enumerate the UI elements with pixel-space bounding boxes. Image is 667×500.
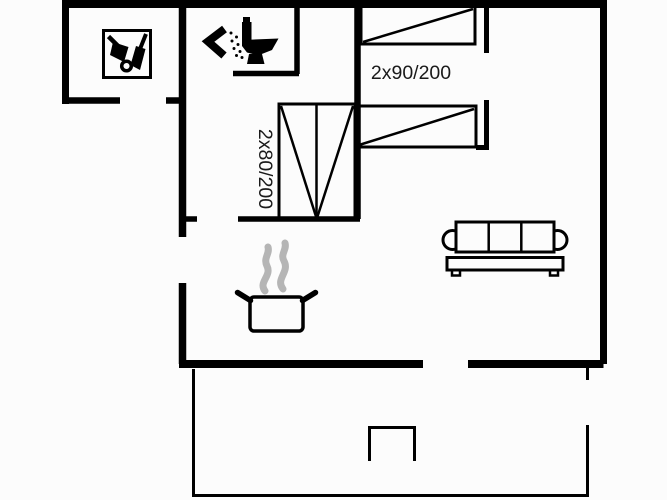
bunk-bed-size-label: 2x80/200 xyxy=(254,129,276,209)
bed-duvet-diagonal xyxy=(359,109,474,145)
bed-duvet-diagonal xyxy=(363,9,473,42)
bedroom-right-wall xyxy=(476,0,489,148)
bathroom-icon xyxy=(208,17,279,64)
steam-icon xyxy=(281,243,286,289)
single-bed-symbol xyxy=(357,106,476,147)
terrace-square xyxy=(370,428,415,462)
floorplan-svg: 2x90/200 2x80/200 xyxy=(0,0,667,500)
sofa-right-foot xyxy=(550,270,558,276)
shower-icon xyxy=(208,29,225,56)
sofa-left-foot xyxy=(452,270,460,276)
bunk-bed-symbol xyxy=(279,104,355,218)
cooking-pot-icon xyxy=(238,293,316,332)
toilet-icon xyxy=(242,17,279,64)
floorplan-image: 2x90/200 2x80/200 xyxy=(0,0,667,500)
steam-icon xyxy=(263,247,268,291)
terrace-outline xyxy=(192,368,589,497)
shower-spray-dots xyxy=(230,32,244,60)
sofa-symbol xyxy=(443,222,567,276)
sofa-back xyxy=(456,222,554,252)
sofa-base xyxy=(447,258,563,271)
kitchen-symbol xyxy=(238,243,316,331)
garden-tools-icon xyxy=(104,31,151,78)
single-bed-symbol xyxy=(361,6,475,44)
double-beds-size-label: 2x90/200 xyxy=(371,62,451,84)
